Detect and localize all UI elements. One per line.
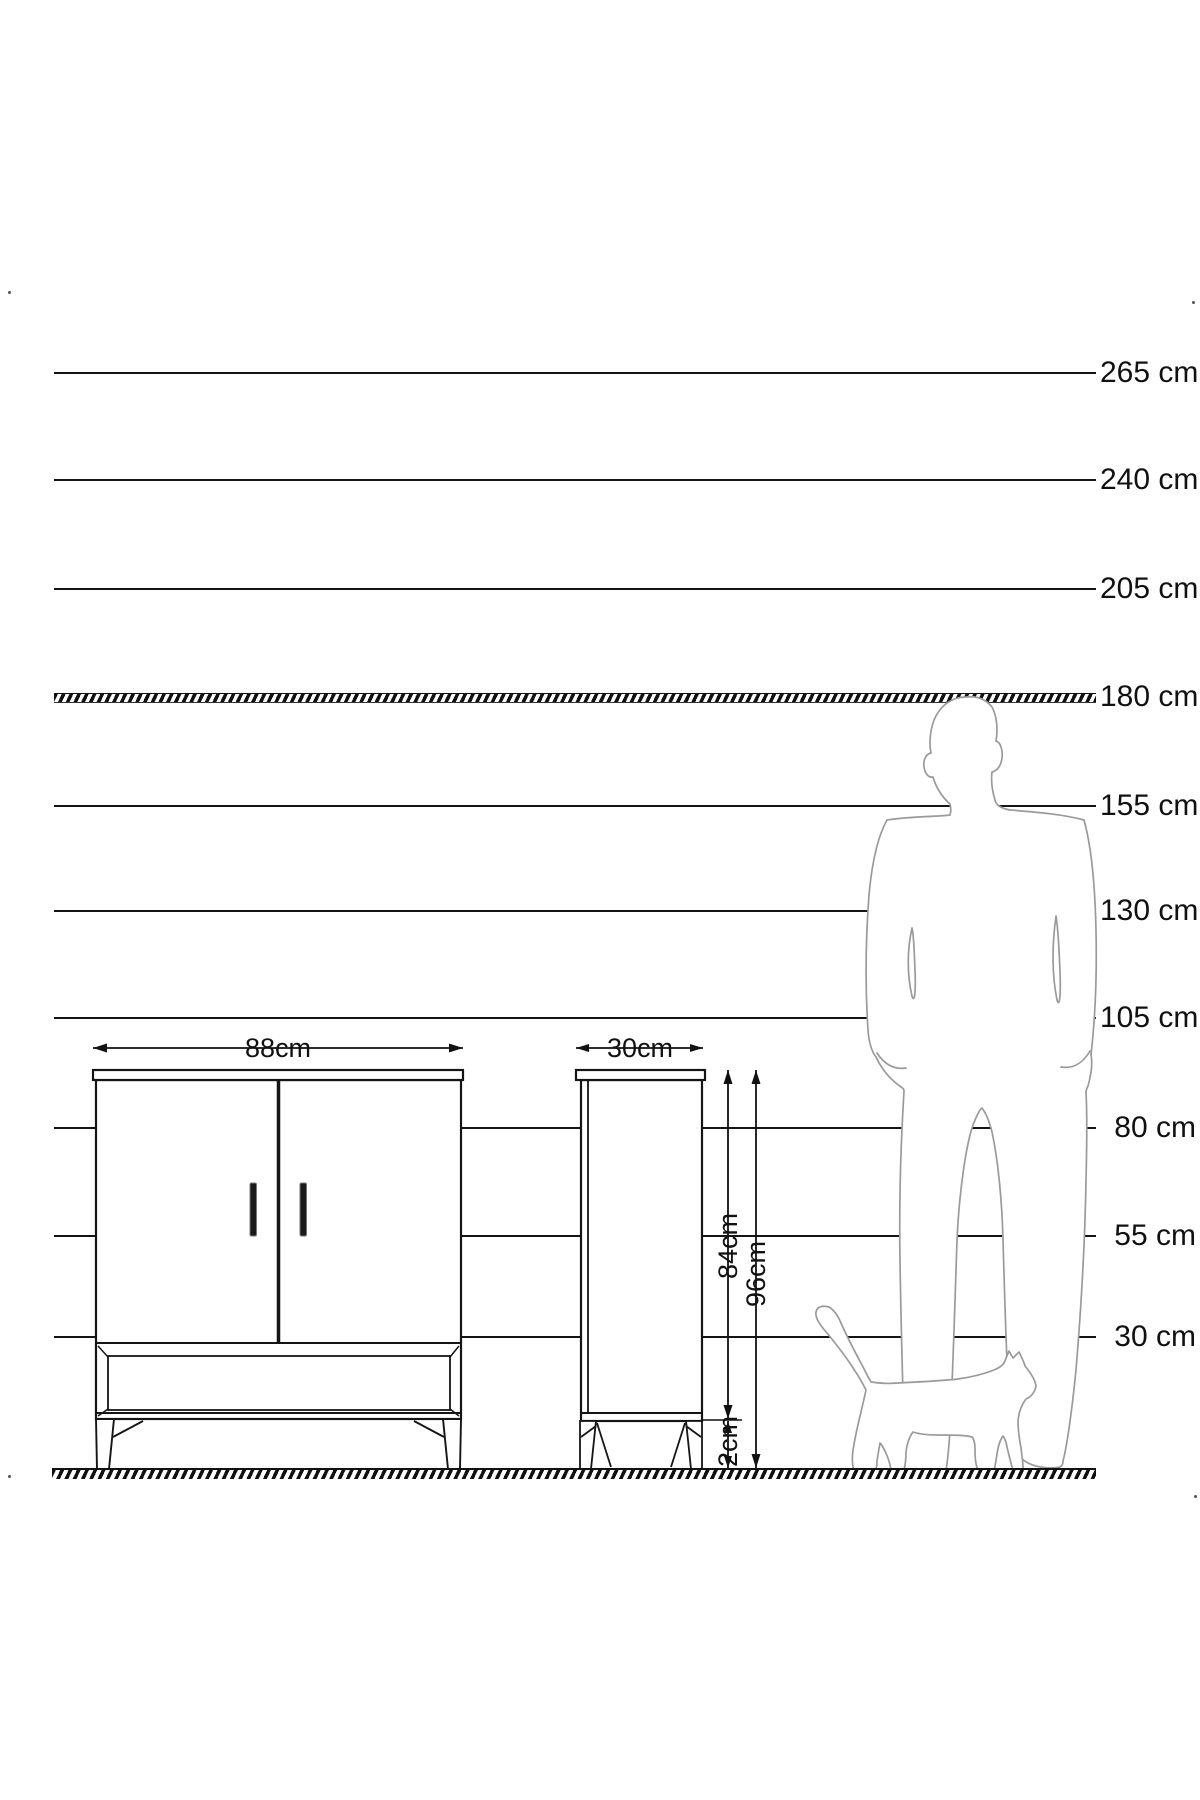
cabinet-front-view	[93, 1070, 463, 1469]
size-diagram: 265 cm 240 cm 205 cm 180 cm 155 cm 130 c…	[0, 0, 1200, 1800]
body-height-dimension-label: 84cm	[713, 1213, 743, 1279]
total-height-dimension-label: 96cm	[741, 1241, 771, 1307]
registration-dot	[1192, 301, 1195, 304]
man-silhouette	[866, 697, 1096, 1470]
diagram-artwork: 88cm 30cm 84cm 96cm 12cm	[0, 0, 1200, 1800]
registration-dot	[1194, 1495, 1197, 1498]
width-dimension-label: 88cm	[245, 1033, 311, 1063]
registration-dot	[8, 291, 11, 294]
cabinet-side-view	[576, 1070, 705, 1469]
depth-dimension-label: 30cm	[607, 1033, 673, 1063]
front-cabinet-legs	[96, 1419, 461, 1469]
registration-dot	[8, 1475, 11, 1478]
side-cabinet-legs	[580, 1421, 702, 1469]
ground-line	[52, 1468, 1096, 1479]
